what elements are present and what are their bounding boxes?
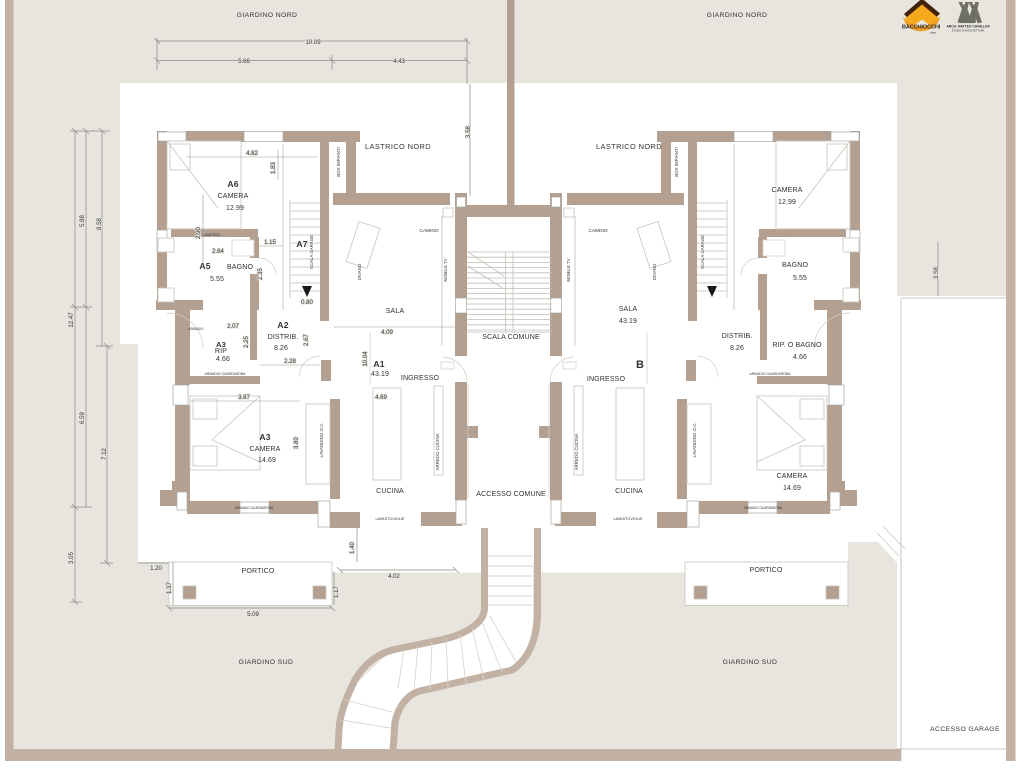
svg-text:1.83: 1.83 <box>270 161 277 173</box>
svg-text:ARREDO CUCINA: ARREDO CUCINA <box>435 434 440 471</box>
svg-text:8.58: 8.58 <box>96 217 103 229</box>
svg-text:RIP. O BAGNO: RIP. O BAGNO <box>772 341 822 349</box>
svg-text:LASTRICO NORD: LASTRICO NORD <box>365 142 431 151</box>
svg-text:DIVANO: DIVANO <box>357 263 362 280</box>
svg-text:2.28: 2.28 <box>284 358 296 365</box>
svg-text:A2: A2 <box>277 320 288 330</box>
svg-text:43.19: 43.19 <box>619 318 637 325</box>
svg-text:2.64: 2.64 <box>212 248 224 255</box>
svg-text:ACCESSO COMUNE: ACCESSO COMUNE <box>476 490 546 498</box>
svg-text:GIARDINO SUD: GIARDINO SUD <box>723 659 778 666</box>
svg-text:12.99: 12.99 <box>778 199 796 206</box>
svg-text:14.69: 14.69 <box>783 485 801 492</box>
svg-text:4.66: 4.66 <box>216 356 230 363</box>
svg-text:BOX IMPIANTI: BOX IMPIANTI <box>674 147 679 177</box>
svg-text:4.02: 4.02 <box>388 573 400 580</box>
svg-text:CAMERA: CAMERA <box>777 472 808 480</box>
svg-text:12.99: 12.99 <box>226 205 244 212</box>
svg-text:LAVASTOVIGLIE: LAVASTOVIGLIE <box>613 517 643 521</box>
svg-text:2.07: 2.07 <box>227 323 239 330</box>
svg-text:8.26: 8.26 <box>274 345 288 352</box>
svg-text:PORTICO: PORTICO <box>242 567 275 575</box>
svg-text:6.59: 6.59 <box>79 411 86 423</box>
svg-text:10.04: 10.04 <box>362 351 369 367</box>
svg-text:7.12: 7.12 <box>101 447 108 459</box>
svg-text:4.82: 4.82 <box>246 150 258 157</box>
svg-text:1.20: 1.20 <box>150 565 162 572</box>
svg-text:2.67: 2.67 <box>303 333 310 345</box>
svg-text:5.55: 5.55 <box>210 276 224 283</box>
svg-text:3.80: 3.80 <box>293 436 300 448</box>
svg-text:GIARDINO NORD: GIARDINO NORD <box>707 12 768 19</box>
svg-text:A5: A5 <box>199 261 210 271</box>
svg-text:ARMADIO GUARDAROBA: ARMADIO GUARDAROBA <box>750 372 792 376</box>
svg-text:CAMERA: CAMERA <box>772 186 803 194</box>
svg-text:5.09: 5.09 <box>247 611 259 618</box>
svg-text:STUDIO DI ARCHITETTURA: STUDIO DI ARCHITETTURA <box>952 30 985 33</box>
svg-text:LASTRICO NORD: LASTRICO NORD <box>596 142 662 151</box>
svg-text:ARREDO CUCINA: ARREDO CUCINA <box>574 434 579 471</box>
svg-text:3.58: 3.58 <box>465 125 472 137</box>
svg-text:INGRESSO: INGRESSO <box>401 374 440 382</box>
svg-text:3.58: 3.58 <box>933 266 940 278</box>
svg-text:5.88: 5.88 <box>79 214 86 226</box>
svg-text:DISTRIB.: DISTRIB. <box>722 332 753 340</box>
svg-text:3.87: 3.87 <box>238 394 250 401</box>
svg-text:CUCINA: CUCINA <box>615 487 643 495</box>
svg-text:SCALA COMUNE: SCALA COMUNE <box>482 333 540 341</box>
svg-text:SCALA GARAGE: SCALA GARAGE <box>309 235 314 269</box>
svg-text:1.17: 1.17 <box>333 585 340 597</box>
svg-text:A7: A7 <box>296 239 307 249</box>
svg-text:0.80: 0.80 <box>301 299 313 306</box>
svg-text:ARMADIO: ARMADIO <box>189 327 204 331</box>
svg-text:A6: A6 <box>227 179 238 189</box>
svg-text:CAMERA: CAMERA <box>250 445 281 453</box>
svg-text:PORTICO: PORTICO <box>750 566 783 574</box>
svg-text:LAVANDINO O.C.: LAVANDINO O.C. <box>692 423 697 458</box>
svg-text:1.15: 1.15 <box>264 239 276 246</box>
svg-text:BAGNO: BAGNO <box>782 261 809 269</box>
svg-text:LAVATRICE: LAVATRICE <box>203 233 220 237</box>
svg-text:4.69: 4.69 <box>375 394 387 401</box>
svg-text:CAMINO: CAMINO <box>419 228 438 234</box>
svg-text:GIARDINO SUD: GIARDINO SUD <box>239 659 294 666</box>
svg-text:5.66: 5.66 <box>238 58 250 65</box>
svg-text:CUCINA: CUCINA <box>376 487 404 495</box>
svg-text:DISTRIB.: DISTRIB. <box>268 333 299 341</box>
svg-text:8.26: 8.26 <box>730 345 744 352</box>
svg-text:4.43: 4.43 <box>393 58 405 65</box>
svg-text:5.55: 5.55 <box>793 275 807 282</box>
svg-text:CAMERA: CAMERA <box>218 192 249 200</box>
svg-text:RIP: RIP <box>215 347 227 355</box>
svg-text:BAGNO: BAGNO <box>227 263 254 271</box>
svg-text:1.40: 1.40 <box>349 541 356 553</box>
svg-text:LAVASTOVIGLIE: LAVASTOVIGLIE <box>375 517 405 521</box>
svg-text:MOBILE TV: MOBILE TV <box>443 258 448 281</box>
svg-text:ARMADIO GUARDAROBA: ARMADIO GUARDAROBA <box>205 372 247 376</box>
svg-text:3.05: 3.05 <box>68 551 75 563</box>
svg-text:1.37: 1.37 <box>166 581 173 593</box>
svg-text:A1: A1 <box>373 359 384 369</box>
svg-text:CAMINO: CAMINO <box>588 228 607 234</box>
svg-text:LAVANDINO O.C.: LAVANDINO O.C. <box>319 423 324 458</box>
svg-text:14.69: 14.69 <box>258 457 276 464</box>
svg-text:case: case <box>930 31 937 35</box>
svg-text:ACCESSO GARAGE: ACCESSO GARAGE <box>930 726 1000 733</box>
svg-text:2.35: 2.35 <box>257 267 264 279</box>
svg-text:B: B <box>636 359 644 371</box>
svg-text:ARMADIO GUARDAROBA: ARMADIO GUARDAROBA <box>235 506 274 510</box>
svg-text:INGRESSO: INGRESSO <box>587 375 626 383</box>
svg-text:MOBILE TV: MOBILE TV <box>566 258 571 281</box>
svg-text:4.66: 4.66 <box>793 354 807 361</box>
svg-text:SCALA GARAGE: SCALA GARAGE <box>700 235 705 269</box>
svg-text:ARMADIO GUARDAROBA: ARMADIO GUARDAROBA <box>744 506 783 510</box>
svg-text:BOX IMPIANTI: BOX IMPIANTI <box>336 147 341 177</box>
svg-text:12.47: 12.47 <box>68 312 75 328</box>
svg-text:SALA: SALA <box>386 307 405 315</box>
svg-text:10.09: 10.09 <box>305 39 321 46</box>
svg-text:2.90: 2.90 <box>195 226 202 238</box>
svg-text:SALA: SALA <box>619 305 638 313</box>
svg-text:DIVANO: DIVANO <box>652 263 657 280</box>
svg-text:ARCH. MATTEO CAVALLINI: ARCH. MATTEO CAVALLINI <box>946 25 989 29</box>
svg-text:GIARDINO NORD: GIARDINO NORD <box>237 12 298 19</box>
svg-text:43.19: 43.19 <box>371 371 389 378</box>
svg-text:A3: A3 <box>259 432 270 442</box>
svg-text:2.25: 2.25 <box>243 335 250 347</box>
svg-text:4.09: 4.09 <box>381 329 393 336</box>
